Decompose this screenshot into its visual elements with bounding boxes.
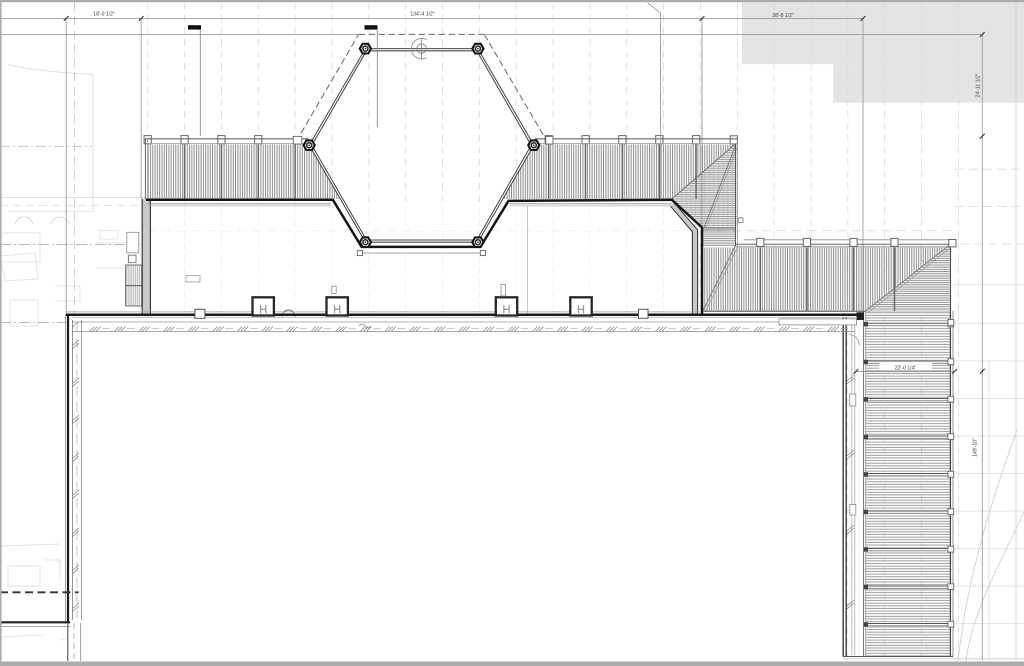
svg-text:134'-4 1/2": 134'-4 1/2" bbox=[410, 12, 434, 18]
svg-text:149'-10": 149'-10" bbox=[973, 438, 979, 457]
svg-text:38'-8 1/2": 38'-8 1/2" bbox=[772, 13, 794, 19]
svg-text:24'-11 1/2": 24'-11 1/2" bbox=[976, 73, 982, 97]
svg-text:18'-0 1/2": 18'-0 1/2" bbox=[93, 12, 115, 18]
svg-text:22'-0 1/4": 22'-0 1/4" bbox=[895, 365, 917, 371]
